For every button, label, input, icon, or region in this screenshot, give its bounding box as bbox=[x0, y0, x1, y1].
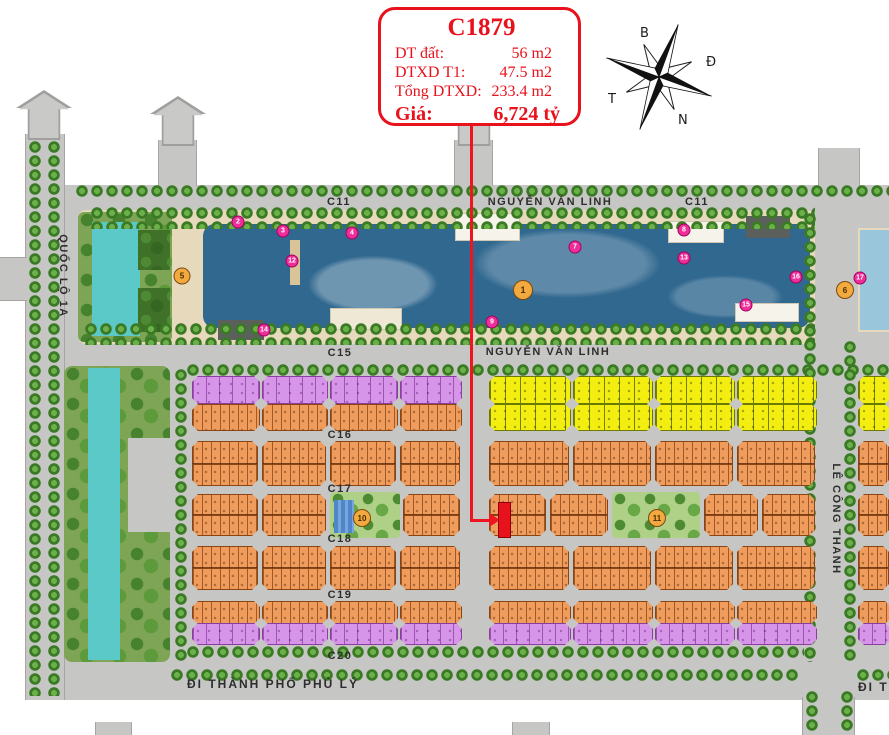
plot-group[interactable] bbox=[762, 494, 815, 536]
info-row: Tổng DTXD: 233.4 m2 bbox=[395, 82, 568, 101]
masterplan-map: QUỐC LỘ 1A C11 NGUYỄN VĂN LINH C11 C15 N… bbox=[0, 0, 889, 735]
tree-row bbox=[28, 140, 42, 696]
pink-location-badge-13: 13 bbox=[678, 252, 691, 265]
plot-group[interactable] bbox=[858, 601, 889, 624]
pink-location-badge-2: 2 bbox=[232, 216, 245, 229]
info-label: DTXD T1: bbox=[395, 63, 465, 82]
tree-row bbox=[84, 322, 815, 345]
plot-group[interactable] bbox=[489, 546, 569, 590]
north-arrow-icon bbox=[153, 99, 203, 144]
road-label-c19: C19 bbox=[316, 589, 364, 601]
plot-group[interactable] bbox=[704, 494, 758, 536]
pink-location-badge-7: 7 bbox=[569, 241, 582, 254]
park-pond bbox=[92, 222, 140, 336]
road-label-c17: C17 bbox=[316, 483, 364, 495]
pink-location-badge-15: 15 bbox=[740, 299, 753, 312]
plot-group[interactable] bbox=[550, 494, 608, 536]
orange-location-badge-5: 5 bbox=[174, 268, 191, 285]
road-label-di-t: ĐI T bbox=[858, 680, 889, 694]
compass-rose-icon bbox=[599, 17, 719, 137]
plot-group[interactable] bbox=[655, 441, 733, 486]
plot-group[interactable] bbox=[262, 546, 326, 590]
north-arrow-icon bbox=[19, 93, 69, 138]
road-west-stub bbox=[0, 257, 27, 301]
orange-location-badge-1: 1 bbox=[513, 280, 533, 300]
plot-group[interactable] bbox=[858, 623, 889, 645]
callout-leader-line bbox=[470, 122, 473, 521]
plot-group[interactable] bbox=[192, 601, 260, 624]
info-label: Tổng DTXD: bbox=[395, 82, 482, 101]
plot-group[interactable] bbox=[737, 441, 815, 486]
tree-column bbox=[805, 690, 818, 732]
plot-group[interactable] bbox=[489, 601, 571, 624]
info-label: DT đất: bbox=[395, 44, 444, 63]
plot-group[interactable] bbox=[400, 601, 462, 624]
price-value: 6,724 tỷ bbox=[433, 101, 568, 127]
plot-group[interactable] bbox=[400, 441, 460, 486]
tree-column bbox=[843, 340, 857, 662]
road-label-c15: C15 bbox=[316, 347, 364, 359]
orange-location-badge-10: 10 bbox=[353, 509, 371, 527]
plot-group[interactable] bbox=[192, 546, 258, 590]
info-value: 56 m2 bbox=[444, 44, 568, 63]
plot-group[interactable] bbox=[330, 404, 398, 431]
road-label-c20: C20 bbox=[316, 650, 364, 662]
plot-group[interactable] bbox=[330, 546, 396, 590]
pink-location-badge-4: 4 bbox=[346, 227, 359, 240]
park-pool bbox=[334, 500, 354, 533]
price-label: Giá: bbox=[395, 101, 433, 127]
plot-group[interactable] bbox=[403, 494, 460, 536]
road-label-c16: C16 bbox=[316, 429, 364, 441]
plot-group[interactable] bbox=[192, 441, 258, 486]
road-label-nguyen-van-linh-top: NGUYỄN VĂN LINH bbox=[482, 196, 618, 208]
plot-group[interactable] bbox=[655, 601, 735, 624]
road-label-nguyen-van-linh-bottom: NGUYỄN VĂN LINH bbox=[480, 346, 616, 358]
plot-group[interactable] bbox=[489, 623, 571, 645]
plot-group[interactable] bbox=[330, 601, 398, 624]
plot-group[interactable] bbox=[858, 376, 889, 404]
road-south-stub bbox=[512, 722, 550, 735]
plot-group[interactable] bbox=[737, 623, 817, 645]
plot-group[interactable] bbox=[400, 376, 462, 404]
park-bushes bbox=[138, 230, 170, 270]
plot-group[interactable] bbox=[400, 404, 462, 431]
pink-location-badge-3: 3 bbox=[277, 225, 290, 238]
plot-group[interactable] bbox=[858, 494, 889, 536]
plot-group[interactable] bbox=[262, 623, 328, 645]
tree-row bbox=[90, 206, 815, 229]
plot-group[interactable] bbox=[192, 376, 260, 404]
plot-group[interactable] bbox=[262, 601, 328, 624]
plot-group[interactable] bbox=[858, 546, 889, 590]
price-row: Giá: 6,724 tỷ bbox=[395, 101, 568, 127]
park-notch bbox=[128, 438, 170, 532]
info-row: DT đất: 56 m2 bbox=[395, 44, 568, 63]
plot-group[interactable] bbox=[489, 376, 571, 404]
pink-location-badge-16: 16 bbox=[790, 271, 803, 284]
plot-group[interactable] bbox=[573, 601, 653, 624]
plot-info-popup: C1879 DT đất: 56 m2 DTXD T1: 47.5 m2 Tổn… bbox=[378, 7, 581, 126]
tree-column bbox=[840, 690, 853, 732]
pink-location-badge-9: 9 bbox=[486, 316, 499, 329]
tree-row bbox=[186, 645, 804, 660]
plot-group[interactable] bbox=[330, 623, 398, 645]
road-north-stub bbox=[158, 140, 197, 186]
road-north-stub bbox=[454, 140, 493, 186]
plot-group[interactable] bbox=[330, 441, 396, 486]
road-label-le-cong-thanh: LÊ CÔNG THANH bbox=[830, 444, 842, 594]
road-label-di-thanh-pho-phu-ly: ĐI THÀNH PHỐ PHỦ LÝ bbox=[178, 677, 368, 691]
info-value: 233.4 m2 bbox=[482, 82, 568, 101]
plot-group[interactable] bbox=[262, 494, 326, 536]
road-south-stub bbox=[95, 722, 132, 735]
road-label-c18: C18 bbox=[316, 533, 364, 545]
pink-location-badge-17: 17 bbox=[854, 272, 867, 285]
plot-group[interactable] bbox=[400, 546, 460, 590]
plot-group[interactable] bbox=[737, 601, 817, 624]
selected-plot-marker[interactable] bbox=[498, 502, 511, 538]
compass-north-label: B bbox=[640, 26, 649, 41]
compass-south-label: N bbox=[678, 113, 688, 128]
plot-group[interactable] bbox=[489, 404, 571, 431]
road-le-cong-thanh-north-stub bbox=[818, 148, 860, 188]
plot-group[interactable] bbox=[655, 546, 733, 590]
plot-group[interactable] bbox=[262, 441, 326, 486]
plot-group[interactable] bbox=[573, 376, 653, 404]
plot-group[interactable] bbox=[192, 494, 258, 536]
road-label-quoc-lo-1a: QUỐC LỘ 1A bbox=[57, 221, 69, 331]
plot-group[interactable] bbox=[573, 623, 653, 645]
pink-location-badge-8: 8 bbox=[678, 224, 691, 237]
plot-group[interactable] bbox=[858, 404, 889, 431]
plot-group[interactable] bbox=[330, 376, 398, 404]
plot-group[interactable] bbox=[737, 376, 817, 404]
pink-location-badge-14: 14 bbox=[258, 324, 271, 337]
plot-group[interactable] bbox=[655, 623, 735, 645]
plot-group[interactable] bbox=[737, 546, 815, 590]
canal bbox=[88, 368, 120, 660]
plot-group[interactable] bbox=[573, 441, 651, 486]
road-label-c11-right: C11 bbox=[673, 196, 721, 208]
compass-west-label: T bbox=[608, 92, 616, 107]
info-row: DTXD T1: 47.5 m2 bbox=[395, 63, 568, 82]
plot-group[interactable] bbox=[262, 404, 328, 431]
orange-location-badge-6: 6 bbox=[836, 281, 854, 299]
info-value: 47.5 m2 bbox=[465, 63, 568, 82]
plot-group[interactable] bbox=[489, 441, 569, 486]
plot-group[interactable] bbox=[573, 404, 653, 431]
pink-location-badge-12: 12 bbox=[286, 255, 299, 268]
plot-group[interactable] bbox=[262, 376, 328, 404]
tree-column bbox=[803, 212, 817, 662]
plot-group[interactable] bbox=[737, 404, 817, 431]
plot-group[interactable] bbox=[192, 404, 260, 431]
orange-location-badge-11: 11 bbox=[648, 509, 666, 527]
tree-column bbox=[174, 368, 189, 662]
plot-group[interactable] bbox=[192, 623, 260, 645]
plot-group[interactable] bbox=[655, 376, 735, 404]
tree-row bbox=[186, 363, 889, 377]
plot-group[interactable] bbox=[655, 404, 735, 431]
plot-group[interactable] bbox=[858, 441, 889, 486]
plot-code: C1879 bbox=[395, 14, 568, 42]
plot-group[interactable] bbox=[400, 623, 462, 645]
plot-group[interactable] bbox=[573, 546, 651, 590]
road-label-c11-left: C11 bbox=[315, 196, 363, 208]
compass-east-label: Đ bbox=[706, 55, 716, 70]
